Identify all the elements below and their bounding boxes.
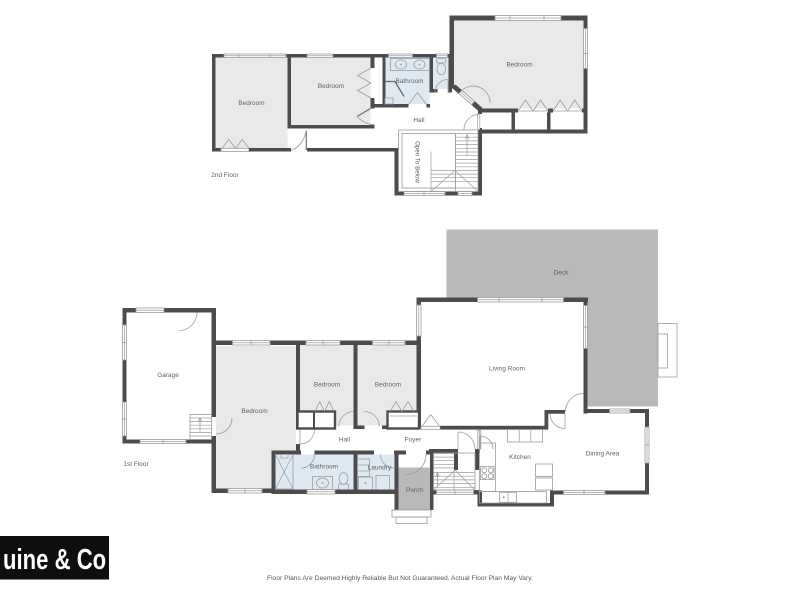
svg-text:Bedroom: Bedroom — [241, 408, 267, 415]
svg-text:Hall: Hall — [339, 436, 350, 443]
svg-text:uine & Co: uine & Co — [3, 544, 106, 576]
svg-text:Bedroom: Bedroom — [506, 62, 532, 69]
svg-text:2nd Floor: 2nd Floor — [211, 172, 239, 179]
svg-text:Bedroom: Bedroom — [375, 381, 401, 388]
svg-text:Bedroom: Bedroom — [318, 83, 344, 90]
svg-text:Open To Below: Open To Below — [414, 141, 421, 183]
svg-text:Bathroom: Bathroom — [395, 78, 423, 85]
svg-text:Bedroom: Bedroom — [314, 381, 340, 388]
svg-text:Kitchen: Kitchen — [509, 454, 531, 461]
svg-text:Dining Area: Dining Area — [586, 451, 620, 458]
svg-text:Deck: Deck — [554, 270, 570, 277]
svg-text:Living Room: Living Room — [489, 366, 525, 373]
svg-text:1st Floor: 1st Floor — [123, 461, 149, 468]
svg-text:Laundry: Laundry — [368, 465, 392, 472]
svg-text:Hall: Hall — [413, 117, 424, 124]
svg-text:Porch: Porch — [406, 487, 423, 494]
svg-text:Bathroom: Bathroom — [310, 464, 338, 471]
svg-text:Bedroom: Bedroom — [238, 100, 264, 107]
svg-text:Garage: Garage — [157, 372, 179, 379]
svg-text:Foyer: Foyer — [405, 436, 422, 443]
